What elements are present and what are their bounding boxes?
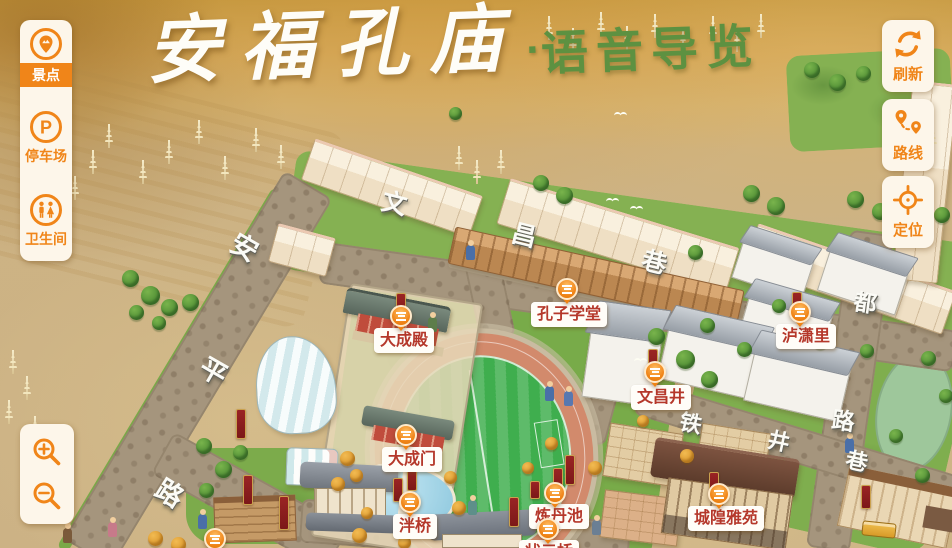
green-tree: [688, 245, 703, 260]
green-tree: [860, 344, 874, 358]
poplar-tree: [74, 176, 76, 200]
poplar-tree: [12, 350, 14, 374]
green-tree: [767, 197, 785, 215]
green-tree: [233, 445, 248, 460]
route-label: 路线: [893, 142, 923, 163]
poplar-tree: [168, 140, 170, 164]
refresh-button[interactable]: 刷新: [882, 20, 934, 92]
pedestrian-figure: [592, 520, 601, 535]
poplar-tree: [476, 160, 478, 184]
poi-pin-wenchangjing[interactable]: [644, 361, 666, 388]
gold-tree: [350, 469, 363, 482]
zoom-out-button[interactable]: [30, 479, 64, 513]
green-tree: [915, 468, 930, 483]
voice-guide-map-app: 安 平 路 文 昌 巷 都 路 铁 井 巷 大成殿 孔子学堂 泸潇里 文昌井 大…: [0, 0, 952, 548]
gold-tree: [340, 451, 355, 466]
gold-tree: [452, 501, 466, 515]
poi-pin-kongzixuetang[interactable]: [556, 278, 578, 305]
pedestrian-figure: [564, 391, 573, 406]
poi-pin-dachengmen[interactable]: [395, 424, 417, 451]
locate-icon: [892, 184, 924, 216]
poplar-tree: [8, 400, 10, 424]
gold-tree: [545, 437, 558, 450]
sidebar-item-parking[interactable]: P 停车场: [20, 109, 72, 166]
pedestrian-figure: [108, 522, 117, 537]
street-char: 都: [852, 283, 880, 320]
poi-pin-luxiaoli[interactable]: [789, 301, 811, 328]
gold-tree: [588, 461, 602, 475]
poplar-tree: [600, 12, 602, 36]
green-tree: [556, 187, 573, 204]
poplar-tree: [224, 156, 226, 180]
locate-label: 定位: [893, 219, 923, 240]
poi-pin-chenghuangyayuan[interactable]: [708, 483, 730, 510]
poplar-tree: [682, 28, 684, 52]
green-tree: [141, 286, 160, 305]
green-tree: [161, 299, 178, 316]
poplar-tree: [458, 146, 460, 170]
green-tree: [701, 371, 718, 388]
green-tree: [196, 438, 212, 454]
shop-banner: [243, 475, 253, 505]
poi-pin-partial[interactable]: [204, 528, 226, 548]
svg-text:P: P: [40, 118, 52, 138]
green-tree: [743, 185, 760, 202]
green-tree: [182, 294, 199, 311]
gold-tree: [148, 531, 163, 546]
pedestrian-figure: [468, 500, 477, 515]
sidebar-item-scenic[interactable]: 景点: [20, 26, 72, 87]
poplar-tree: [736, 28, 738, 52]
poi-label-wenchangjing[interactable]: 文昌井: [631, 385, 691, 410]
green-tree: [829, 74, 846, 91]
green-tree: [889, 429, 903, 443]
poplar-tree: [108, 124, 110, 148]
bird: [614, 112, 628, 118]
poi-pin-zhuangyuanqiao[interactable]: [537, 518, 559, 545]
green-tree: [737, 342, 752, 357]
green-tree: [533, 175, 549, 191]
locate-button[interactable]: 定位: [882, 176, 934, 248]
shop-banner: [565, 455, 575, 485]
sidebar-item-label: 卫生间: [25, 229, 67, 249]
sidebar-item-label: 停车场: [25, 146, 67, 166]
pedestrian-figure: [198, 514, 207, 529]
map-viewport[interactable]: 安 平 路 文 昌 巷 都 路 铁 井 巷 大成殿 孔子学堂 泸潇里 文昌井 大…: [0, 0, 952, 548]
green-tree: [152, 316, 166, 330]
green-tree: [449, 107, 462, 120]
green-tree: [122, 270, 139, 287]
poplar-tree: [26, 376, 28, 400]
poplar-tree: [142, 160, 144, 184]
poi-pin-liandanchi[interactable]: [544, 482, 566, 509]
shop-banner: [279, 496, 289, 530]
shop-banner: [236, 409, 246, 439]
poplar-tree: [548, 16, 550, 40]
gold-tree: [522, 462, 534, 474]
green-tree: [934, 207, 950, 223]
route-button[interactable]: 路线: [882, 99, 934, 171]
gold-tree: [352, 528, 367, 543]
map-decorations: [0, 0, 952, 548]
parking-icon: P: [28, 109, 64, 145]
shop-banner: [861, 485, 871, 509]
street-char: 路: [830, 401, 858, 438]
refresh-label: 刷新: [893, 63, 923, 84]
zoom-panel: [20, 424, 74, 524]
green-tree: [772, 299, 786, 313]
sidebar-panel: 景点 P 停车场 卫生间: [20, 20, 72, 261]
bird: [606, 198, 620, 204]
poplar-tree: [500, 150, 502, 174]
shop-banner: [509, 497, 519, 527]
route-icon: [892, 107, 924, 139]
gold-tree: [444, 471, 457, 484]
poplar-tree: [626, 26, 628, 50]
refresh-icon: [892, 28, 924, 60]
green-tree: [921, 351, 936, 366]
poplar-tree: [92, 150, 94, 174]
green-tree: [648, 328, 665, 345]
poi-pin-panqiao[interactable]: [399, 491, 421, 518]
gold-tree: [637, 415, 649, 427]
poplar-tree: [198, 120, 200, 144]
poi-pin-dachengdian[interactable]: [390, 305, 412, 332]
restroom-icon: [28, 192, 64, 228]
gold-tree: [361, 507, 373, 519]
green-tree: [199, 483, 214, 498]
poplar-tree: [654, 14, 656, 38]
shop-banner: [530, 481, 540, 499]
poplar-tree: [712, 16, 714, 40]
pedestrian-figure: [466, 245, 475, 260]
pedestrian-figure: [545, 386, 554, 401]
poplar-tree: [572, 28, 574, 52]
pedestrian-figure: [63, 528, 72, 543]
zoom-in-button[interactable]: [30, 435, 64, 469]
bird: [630, 206, 644, 212]
gold-tree: [331, 477, 345, 491]
poplar-tree: [280, 145, 282, 169]
green-tree: [700, 318, 715, 333]
scenic-spot-icon: [28, 26, 64, 62]
green-tree: [676, 350, 695, 369]
green-tree: [129, 305, 144, 320]
poplar-tree: [255, 128, 257, 152]
green-tree: [856, 66, 871, 81]
poplar-tree: [760, 14, 762, 38]
gold-tree: [171, 537, 186, 548]
green-tree: [215, 461, 232, 478]
green-tree: [939, 389, 952, 403]
green-tree: [847, 191, 864, 208]
green-tree: [804, 62, 820, 78]
sidebar-item-label: 景点: [20, 63, 72, 87]
gold-tree: [680, 449, 694, 463]
sidebar-item-toilet[interactable]: 卫生间: [20, 192, 72, 249]
